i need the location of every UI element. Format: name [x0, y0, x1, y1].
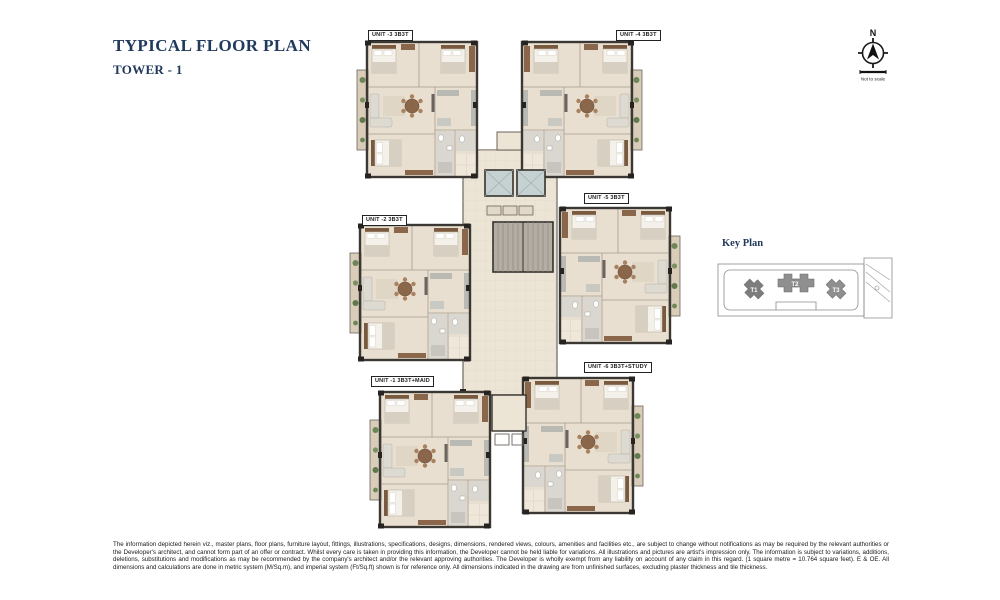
- service-lift-icon: [517, 170, 545, 196]
- unit-4-plan: [522, 41, 642, 179]
- key-plan-tower-2-label: T2: [791, 282, 799, 288]
- page-subtitle: TOWER - 1: [113, 62, 311, 78]
- unit-5-plan: [560, 207, 680, 345]
- key-plan-title: Key Plan: [722, 238, 763, 249]
- lobby-closet: [519, 206, 533, 215]
- unit-label-1: UNIT -1 3B3T+MAID: [371, 376, 434, 387]
- lobby-closet: [503, 206, 517, 215]
- lower-vestibule: [492, 395, 526, 431]
- unit-2-plan: [350, 224, 470, 362]
- staircase: [493, 222, 553, 272]
- unit-label-3: UNIT -3 3B3T: [368, 30, 413, 41]
- floor-plan: [345, 20, 685, 560]
- unit-label-4: UNIT -4 3B3T: [616, 30, 661, 41]
- unit-6-plan: [523, 377, 643, 515]
- brochure-page: TYPICAL FLOOR PLAN TOWER - 1 N Not to sc…: [0, 0, 1000, 600]
- compass-scale-note: Not to scale: [861, 77, 886, 82]
- compass-icon: N Not to scale: [852, 26, 894, 84]
- unit-1-plan: [370, 391, 490, 529]
- shaft: [495, 434, 509, 445]
- header: TYPICAL FLOOR PLAN TOWER - 1: [113, 36, 311, 78]
- compass-north-letter: N: [870, 28, 877, 38]
- key-plan-map: T1 T2 T3: [716, 252, 894, 324]
- disclaimer-text: The information depicted herein viz., ma…: [113, 541, 889, 571]
- unit-3-plan: [357, 41, 477, 179]
- key-plan-tower-3-label: T3: [832, 288, 840, 294]
- unit-label-5: UNIT -5 3B3T: [584, 193, 629, 204]
- passenger-lift-icon: [485, 170, 513, 196]
- key-plan-tower-1-label: T1: [750, 288, 758, 294]
- north-compass: N Not to scale: [852, 26, 894, 84]
- page-title: TYPICAL FLOOR PLAN: [113, 36, 311, 56]
- shaft: [512, 434, 523, 445]
- lobby-closet: [487, 206, 501, 215]
- unit-label-2: UNIT -2 3B3T: [362, 215, 407, 226]
- unit-label-6: UNIT -6 3B3T+STUDY: [584, 362, 652, 373]
